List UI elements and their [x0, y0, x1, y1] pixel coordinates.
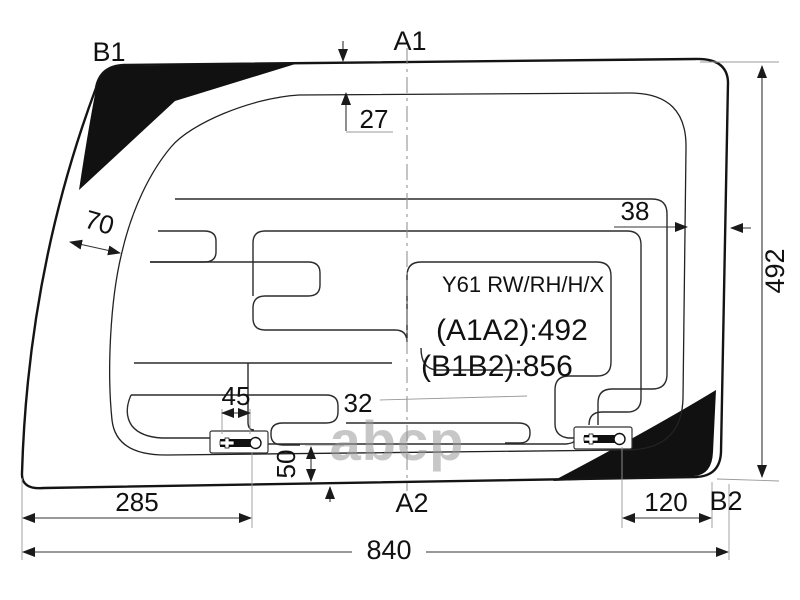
dim-terminal-width: 45 [222, 381, 251, 411]
model-code: Y61 RW/RH/H/X [442, 272, 605, 297]
frit-corner-top-left [79, 64, 297, 191]
dim-right-terminal-offset: 120 [644, 487, 687, 517]
dim-right-band: 38 [621, 196, 650, 226]
spec-a1a2: (A1A2):492 [436, 314, 588, 347]
corner-label-b1: B1 [92, 37, 125, 67]
heater-terminal-left [210, 431, 268, 453]
dim-left-terminal-offset: 285 [115, 487, 158, 517]
glass-diagram: abcp 27 38 70 492 45 32 50 285 120 [0, 0, 800, 600]
corner-label-a2: A2 [395, 488, 428, 518]
corner-label-a1: A1 [393, 26, 426, 56]
spec-block: Y61 RW/RH/H/X (A1A2):492 (B1B2):856 [421, 272, 605, 383]
dim-70-line [70, 242, 120, 253]
dim-row-gap: 32 [344, 388, 373, 418]
dim-total-width: 840 [366, 535, 411, 565]
spec-b1b2: (B1B2):856 [421, 350, 573, 383]
dim-bottom-gap: 50 [271, 450, 301, 479]
dim-height: 492 [760, 248, 790, 293]
heater-terminal-right [574, 427, 632, 449]
dim-top-band: 27 [360, 104, 389, 134]
diagram-canvas: abcp 27 38 70 492 45 32 50 285 120 [0, 0, 800, 600]
corner-label-b2: B2 [709, 486, 742, 516]
dim-left-band: 70 [81, 204, 117, 241]
watermark: abcp [330, 409, 465, 472]
